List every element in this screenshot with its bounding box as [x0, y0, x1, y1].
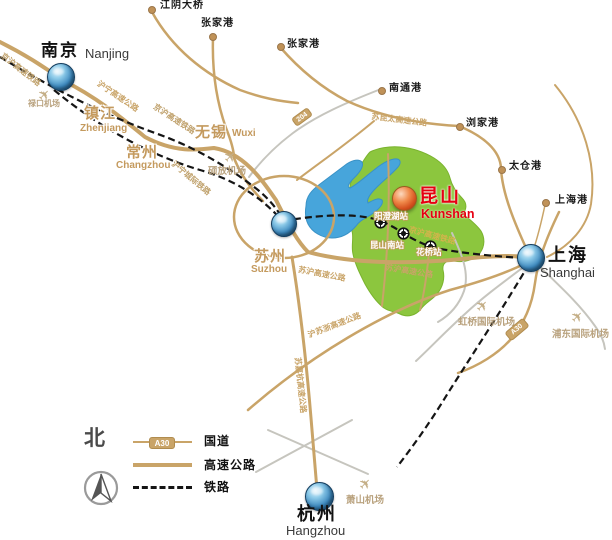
legend-line-railway: [133, 486, 192, 489]
legend-label-railway: 铁路: [204, 481, 230, 493]
city-label-shanghai-en: Shanghai: [540, 266, 595, 279]
north-label: 北: [84, 428, 105, 449]
port-marker-zhangjiagang: [277, 43, 285, 51]
city-label-hangzhou-zh: 杭州: [297, 505, 337, 523]
airport-label-pudong: 浦东国际机场: [552, 330, 609, 340]
station-label-huaqiao: 花桥站: [416, 248, 442, 257]
city-label-kunshan-zh: 昆山: [419, 187, 461, 206]
city-marker-kunshan: [392, 186, 417, 211]
port-label-jiangyin-bridge: 江阴大桥: [160, 1, 204, 11]
city-label-nanjing-zh: 南京: [41, 42, 79, 59]
city-label-zhenjiang-zh: 镇江: [84, 106, 116, 121]
station-label-kunshan-south: 昆山南站: [370, 241, 404, 250]
port-label-nantong: 南通港: [389, 84, 422, 94]
station-label-yangchenghu: 阳澄湖站: [374, 212, 408, 221]
city-label-shanghai-zh: 上海: [548, 246, 588, 264]
city-label-wuxi-zh: 无锡: [195, 125, 227, 140]
city-marker-nanjing: [47, 63, 75, 91]
city-label-wuxi-en: Wuxi: [232, 129, 256, 139]
legend-label-expressway: 高速公路: [204, 459, 256, 471]
legend-line-expressway: [133, 463, 192, 467]
airport-label-lukou: 禄口机场: [28, 100, 60, 108]
legend-badge-a30: A30: [149, 437, 175, 449]
kunshan-transport-map: ✈ ✈ ✈ ✈ ✈ 南京 Nanjing 镇江 Zhenjiang 常州 Cha…: [0, 0, 612, 540]
port-label-liujiagang: 浏家港: [466, 119, 499, 129]
airport-label-xiaoshan: 萧山机场: [346, 496, 384, 506]
city-label-zhenjiang-en: Zhenjiang: [80, 124, 127, 134]
city-label-changzhou-zh: 常州: [126, 145, 158, 160]
port-marker-jiangyin-bridge: [148, 6, 156, 14]
port-label-zhangjiagang-n: 张家港: [201, 19, 234, 29]
city-label-suzhou-en: Suzhou: [251, 265, 287, 275]
expressways: [0, 12, 592, 490]
port-marker-shanghai-port: [542, 199, 550, 207]
port-marker-liujiagang: [456, 123, 464, 131]
port-label-shanghai-port: 上海港: [555, 196, 588, 206]
port-marker-nantong: [378, 87, 386, 95]
airport-label-shuofang: 硕放机场: [208, 167, 246, 177]
port-marker-taicang: [498, 166, 506, 174]
airport-label-hongqiao: 虹桥国际机场: [458, 318, 515, 328]
city-label-kunshan-en: Kunshan: [421, 208, 474, 221]
city-marker-suzhou: [271, 211, 297, 237]
compass-icon: [82, 469, 120, 512]
port-marker-zhangjiagang-n: [209, 33, 217, 41]
port-label-taicang: 太仓港: [509, 162, 542, 172]
port-label-zhangjiagang: 张家港: [287, 40, 320, 50]
city-label-changzhou-en: Changzhou: [116, 161, 170, 171]
city-label-hangzhou-en: Hangzhou: [286, 524, 345, 537]
legend-label-national-road: 国道: [204, 435, 230, 447]
city-label-nanjing-en: Nanjing: [85, 47, 129, 60]
city-label-suzhou-zh: 苏州: [254, 249, 286, 264]
